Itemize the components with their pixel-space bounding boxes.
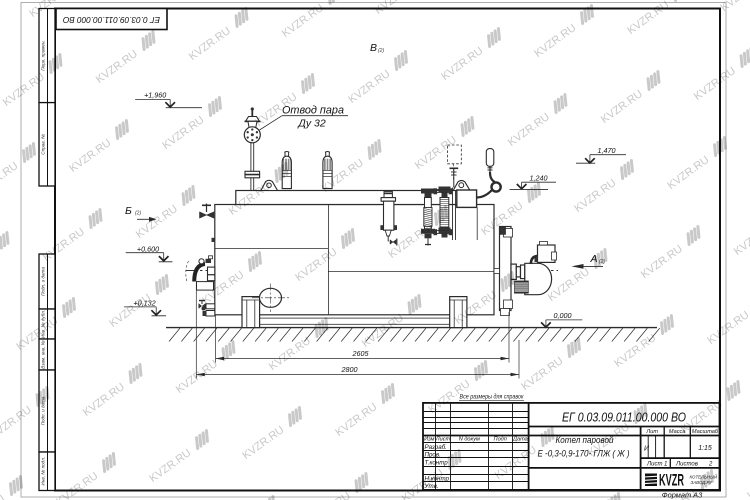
svg-text:Листов: Листов bbox=[675, 462, 698, 468]
svg-text:В: В bbox=[370, 42, 377, 54]
svg-text:Т.контр: Т.контр bbox=[425, 460, 449, 467]
svg-text:Перв. примен.: Перв. примен. bbox=[41, 40, 46, 71]
svg-text:+1,960: +1,960 bbox=[144, 91, 166, 100]
svg-text:Взам. инв. №: Взам. инв. № bbox=[41, 340, 46, 368]
svg-text:N докум: N докум bbox=[459, 437, 480, 443]
svg-text:Изм: Изм bbox=[424, 437, 435, 443]
svg-text:KVZR: KVZR bbox=[659, 472, 684, 490]
svg-text:Справ. №: Справ. № bbox=[41, 134, 46, 155]
svg-text:Разраб.: Разраб. bbox=[425, 444, 447, 451]
svg-text:ЕГ 0.03.09.011.00.000 ВО: ЕГ 0.03.09.011.00.000 ВО bbox=[63, 15, 160, 25]
svg-text:Подп. и дата: Подп. и дата bbox=[41, 267, 46, 296]
svg-text:Подп: Подп bbox=[494, 437, 507, 443]
svg-text:2800: 2800 bbox=[341, 365, 358, 374]
svg-text:Лист: Лист bbox=[435, 437, 451, 443]
svg-text:+0,600: +0,600 bbox=[137, 244, 159, 253]
svg-text:2: 2 bbox=[708, 462, 713, 468]
svg-text:0,000: 0,000 bbox=[554, 311, 572, 320]
svg-text:1,470: 1,470 bbox=[598, 146, 616, 155]
svg-text:1:15: 1:15 bbox=[698, 445, 712, 452]
svg-text:Все размеры для справок: Все размеры для справок bbox=[460, 393, 525, 401]
svg-text:Лист: Лист bbox=[646, 462, 662, 468]
svg-text:(2): (2) bbox=[378, 48, 384, 54]
svg-text:1,240: 1,240 bbox=[530, 173, 548, 182]
svg-text:Б: Б bbox=[125, 205, 132, 217]
svg-text:Е -0,3-0,9-170- ГЛЖ ( Ж ): Е -0,3-0,9-170- ГЛЖ ( Ж ) bbox=[538, 449, 630, 459]
svg-text:Лит: Лит bbox=[645, 429, 658, 435]
svg-text:Дата: Дата bbox=[512, 437, 528, 443]
svg-text:Пров.: Пров. bbox=[425, 451, 441, 458]
svg-text:Ду 32: Ду 32 bbox=[297, 118, 326, 130]
svg-text:2605: 2605 bbox=[352, 349, 370, 358]
svg-text:Масштаб: Масштаб bbox=[692, 429, 719, 435]
svg-text:(2): (2) bbox=[135, 211, 141, 217]
svg-text:Инв. № подл.: Инв. № подл. bbox=[41, 457, 46, 486]
svg-text:1: 1 bbox=[664, 462, 667, 468]
